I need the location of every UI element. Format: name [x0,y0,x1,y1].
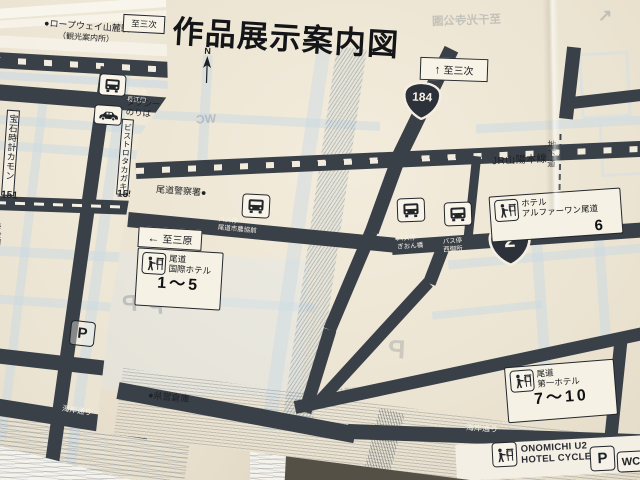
bus-stop-icon [444,202,473,227]
paper-fold-crease [542,0,562,210]
compass-n-label: N [200,46,214,57]
artist-easel-icon [141,252,166,275]
police-station-label: 尾道警察署● [156,184,207,198]
bus-stop-icon [241,193,270,218]
venue-kokusai-hotel: 尾道国際ホテル 1〜5 [134,247,223,310]
to-miyoshi-label: 至三次 [443,62,474,78]
artist-easel-icon [509,369,535,393]
left-arrow-icon: ← [147,230,160,245]
bus-stop-icon [98,73,126,97]
bus-icon [246,197,267,214]
bus-stop-label: バス停ぎおん橋 [396,234,423,251]
taxi-icon [97,109,120,122]
taxi-stand-icon [93,104,122,126]
minor-road [432,300,542,319]
to-miyoshi-sign: ↑ 至三次 [420,57,489,82]
route-184-shield: 184 [401,81,443,121]
wc-label: WC [622,455,640,468]
bus-stop-label: バス停西御所 [442,237,463,254]
showthrough-arrow: ↗ [598,6,612,26]
parking-icon-left: P [69,320,96,347]
venue-u2-label: ONOMICHI U2HOTEL CYCLE [520,441,591,466]
bus-icon [102,77,122,93]
venue-numbers: 6 [594,217,606,234]
jr-line-label: JR山陽本線 [492,154,548,168]
parking-label: P [597,450,608,468]
venue-daiichi-hotel: 尾道第一ホテル 7〜10 [504,359,618,423]
city-block [578,51,631,120]
artist-easel-icon [494,199,519,223]
artist-easel-icon [491,441,517,467]
to-miyoshi-label: 至三次 [131,17,157,30]
bus-icon [401,202,422,219]
map-photo-scene: ●ロープウェイ山麓駅 （観光案内所） 至三次 バス停長江口 タクシーのりば 宝石… [0,0,640,480]
parking-icon: P [589,445,615,471]
parking-label: P [77,325,89,343]
compass: N [199,46,215,90]
shop-kamon-number: 151 [1,189,18,202]
venue-numbers: 1〜5 [140,274,217,296]
showthrough-wc: WC [196,111,217,126]
north-arrow-icon [201,56,212,84]
to-mihara-label: 至三原 [162,231,193,248]
bus-stop-icon [397,198,426,223]
showthrough-senkoji: 至千光寺公園 [432,11,502,29]
bus-stop-label: バス停尾道市農協前 [217,216,257,235]
up-arrow-icon: ↑ [434,62,440,76]
to-miyoshi-sign-left: 至三次 [123,14,166,34]
showthrough-p: P [387,334,406,366]
wc-icon: WC [616,450,640,472]
bus-icon [448,206,469,223]
